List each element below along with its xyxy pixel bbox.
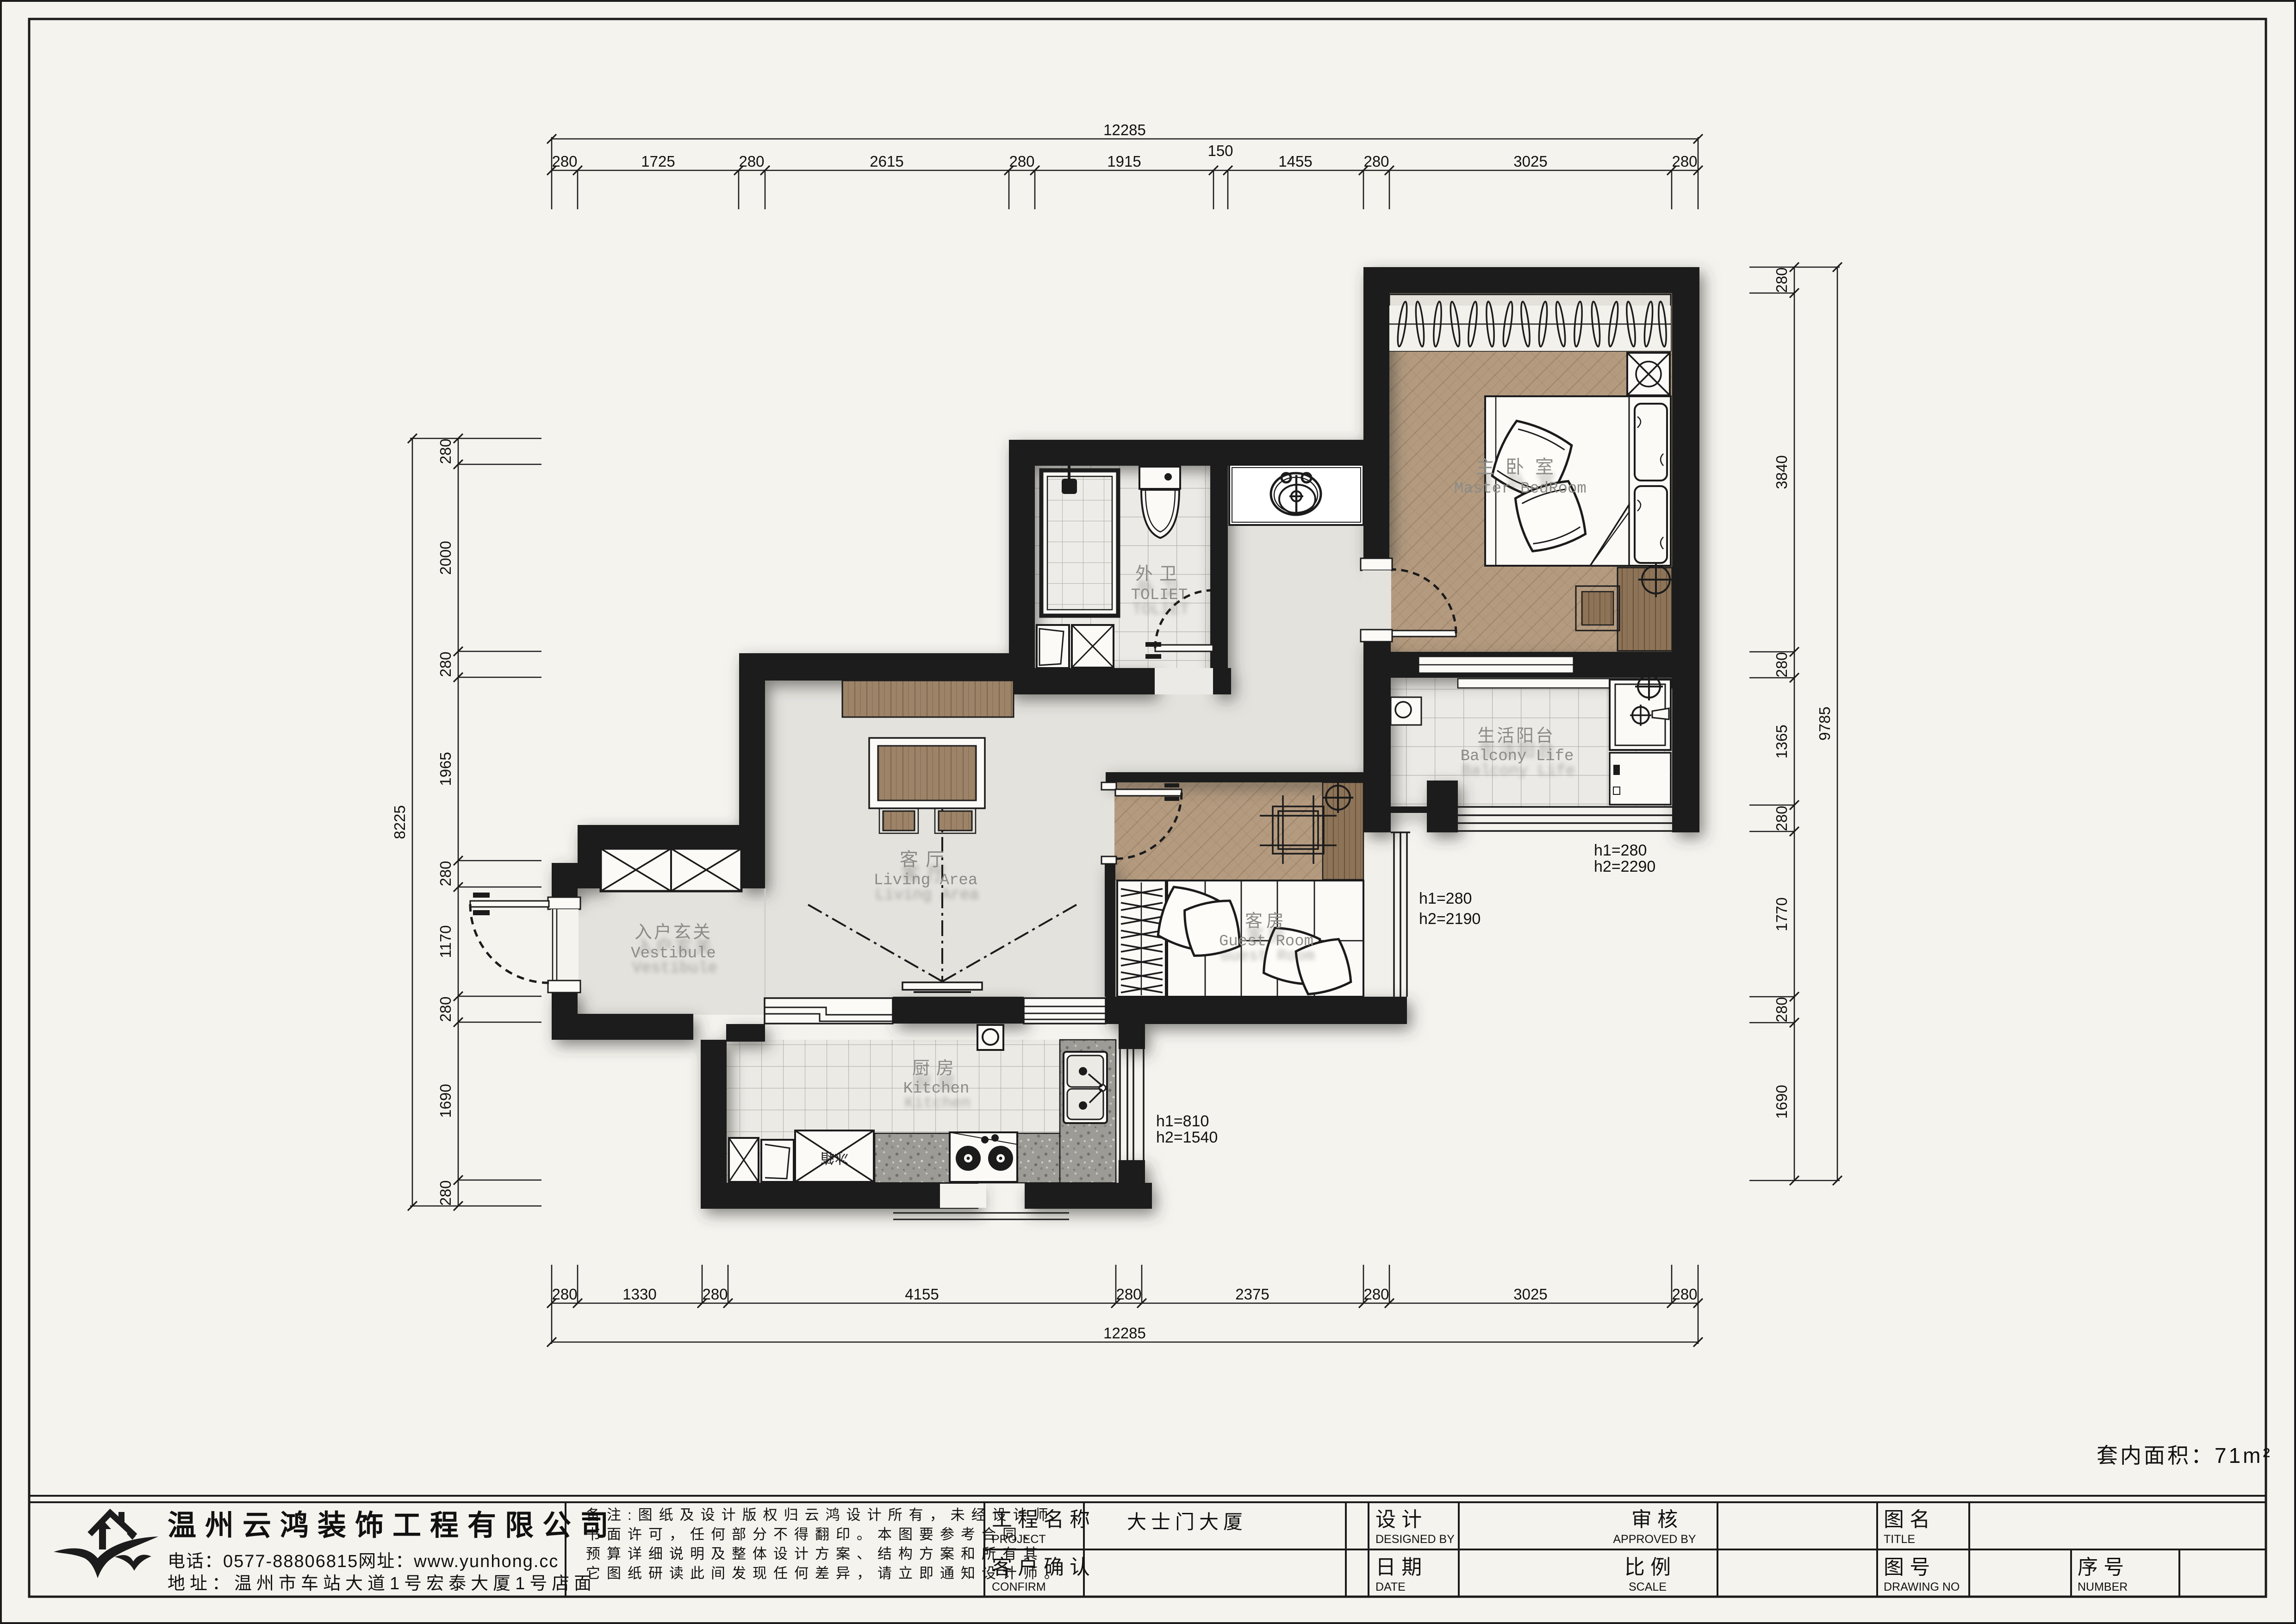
svg-text:150: 150 xyxy=(1207,142,1233,159)
svg-text:h2=1540: h2=1540 xyxy=(1156,1129,1218,1146)
svg-text:冰箱: 冰箱 xyxy=(821,1150,848,1165)
svg-text:h1=280: h1=280 xyxy=(1594,842,1647,859)
svg-text:1365: 1365 xyxy=(1773,725,1790,758)
svg-text:外卫: 外卫 xyxy=(1135,564,1183,584)
svg-text:备注:图纸及设计版权归云鸿设计所有，未经设计师: 备注:图纸及设计版权归云鸿设计所有，未经设计师 xyxy=(586,1507,1055,1523)
svg-text:280: 280 xyxy=(1009,153,1034,170)
svg-text:280: 280 xyxy=(739,153,764,170)
svg-text:1915: 1915 xyxy=(1107,153,1141,170)
svg-text:8225: 8225 xyxy=(391,805,408,839)
svg-text:280: 280 xyxy=(437,1180,454,1206)
svg-text:SCALE: SCALE xyxy=(1629,1580,1667,1593)
svg-text:日 期: 日 期 xyxy=(1375,1556,1422,1579)
svg-text:厨房: 厨房 xyxy=(912,1059,960,1078)
svg-text:h2=2190: h2=2190 xyxy=(1419,910,1481,928)
svg-text:DESIGNED BY: DESIGNED BY xyxy=(1375,1533,1455,1546)
svg-text:设 计: 设 计 xyxy=(1375,1508,1422,1531)
svg-text:280: 280 xyxy=(1672,153,1697,170)
svg-text:280: 280 xyxy=(552,153,577,170)
svg-text:DRAWING NO: DRAWING NO xyxy=(1884,1580,1960,1593)
svg-text:比 例: 比 例 xyxy=(1624,1556,1671,1579)
svg-text:1965: 1965 xyxy=(437,752,454,786)
svg-text:TOLIET: TOLIET xyxy=(1131,587,1188,604)
svg-text:280: 280 xyxy=(1363,153,1389,170)
svg-text:Living Area: Living Area xyxy=(874,872,977,889)
svg-text:预算详细说明及整体设计方案、结构方案和所有其: 预算详细说明及整体设计方案、结构方案和所有其 xyxy=(586,1546,1044,1562)
svg-text:工程名称: 工程名称 xyxy=(992,1508,1095,1531)
svg-text:APPROVED BY: APPROVED BY xyxy=(1613,1533,1696,1546)
svg-text:大士门大厦: 大士门大厦 xyxy=(1127,1511,1247,1533)
svg-text:280: 280 xyxy=(552,1286,577,1303)
svg-text:9785: 9785 xyxy=(1816,706,1833,740)
svg-text:280: 280 xyxy=(1363,1286,1389,1303)
svg-text:280: 280 xyxy=(437,996,454,1022)
svg-text:h2=2290: h2=2290 xyxy=(1594,858,1655,875)
svg-text:主卧室: 主卧室 xyxy=(1476,457,1565,477)
svg-text:2375: 2375 xyxy=(1235,1286,1269,1303)
svg-text:电话：0577-88806815网址：www.yunhong: 电话：0577-88806815网址：www.yunhong.cc xyxy=(168,1552,559,1571)
svg-text:280: 280 xyxy=(437,438,454,464)
svg-text:2000: 2000 xyxy=(437,541,454,575)
svg-text:280: 280 xyxy=(1672,1286,1697,1303)
svg-text:h1=810: h1=810 xyxy=(1156,1112,1209,1130)
svg-text:Balcony Life: Balcony Life xyxy=(1461,748,1574,765)
svg-text:地址：温州市车站大道1号宏泰大厦1号店面: 地址：温州市车站大道1号宏泰大厦1号店面 xyxy=(168,1574,596,1593)
svg-text:生活阳台: 生活阳台 xyxy=(1477,726,1555,746)
svg-text:CONFIRM: CONFIRM xyxy=(992,1580,1046,1593)
svg-text:套内面积：71m²: 套内面积：71m² xyxy=(2097,1443,2272,1468)
svg-text:客房: 客房 xyxy=(1245,912,1288,931)
svg-text:280: 280 xyxy=(1773,652,1790,677)
svg-text:客厅: 客厅 xyxy=(900,849,952,870)
svg-text:4155: 4155 xyxy=(905,1286,939,1303)
svg-text:1690: 1690 xyxy=(1773,1085,1790,1118)
svg-text:审 核: 审 核 xyxy=(1631,1508,1678,1531)
svg-text:客户确认: 客户确认 xyxy=(992,1556,1095,1579)
svg-text:280: 280 xyxy=(437,861,454,886)
svg-text:图 号: 图 号 xyxy=(1884,1556,1930,1579)
svg-text:1725: 1725 xyxy=(641,153,675,170)
svg-text:1455: 1455 xyxy=(1278,153,1312,170)
svg-text:1770: 1770 xyxy=(1773,897,1790,931)
svg-text:书面许可，任何部分不得翻印。本图要参考合同、: 书面许可，任何部分不得翻印。本图要参考合同、 xyxy=(586,1526,1044,1543)
svg-text:280: 280 xyxy=(702,1286,728,1303)
svg-text:温州云鸿装饰工程有限公司: 温州云鸿装饰工程有限公司 xyxy=(168,1510,617,1542)
svg-text:NUMBER: NUMBER xyxy=(2078,1580,2128,1593)
svg-text:3025: 3025 xyxy=(1513,153,1547,170)
svg-text:280: 280 xyxy=(1773,997,1790,1022)
svg-text:Vestibule: Vestibule xyxy=(631,945,716,962)
svg-text:Master BedRoom: Master BedRoom xyxy=(1454,480,1587,498)
svg-text:3840: 3840 xyxy=(1773,455,1790,489)
svg-text:2615: 2615 xyxy=(870,153,903,170)
svg-text:1690: 1690 xyxy=(437,1084,454,1118)
svg-text:Guest Room: Guest Room xyxy=(1219,933,1313,950)
svg-text:入户玄关: 入户玄关 xyxy=(635,923,712,942)
svg-text:Kitchen: Kitchen xyxy=(903,1080,970,1098)
svg-text:12285: 12285 xyxy=(1103,121,1146,138)
svg-text:280: 280 xyxy=(437,651,454,677)
svg-text:序 号: 序 号 xyxy=(2078,1556,2124,1579)
svg-text:12285: 12285 xyxy=(1103,1324,1146,1342)
svg-text:图 名: 图 名 xyxy=(1884,1508,1930,1531)
svg-text:3025: 3025 xyxy=(1513,1286,1547,1303)
svg-text:PROJECT: PROJECT xyxy=(992,1533,1046,1546)
svg-text:280: 280 xyxy=(1773,806,1790,831)
svg-text:1330: 1330 xyxy=(622,1286,656,1303)
svg-text:280: 280 xyxy=(1773,267,1790,293)
svg-text:280: 280 xyxy=(1116,1286,1141,1303)
svg-text:TITLE: TITLE xyxy=(1884,1533,1915,1546)
svg-text:h1=280: h1=280 xyxy=(1419,890,1472,907)
svg-text:1170: 1170 xyxy=(437,925,454,958)
svg-text:DATE: DATE xyxy=(1375,1580,1406,1593)
